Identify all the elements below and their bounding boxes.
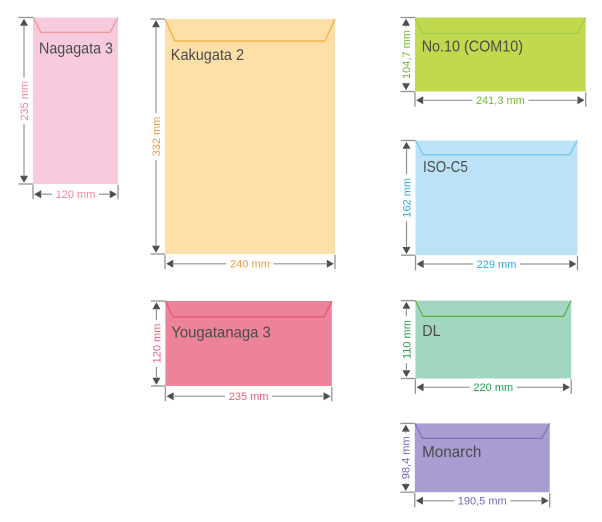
svg-text:190,5 mm: 190,5 mm — [458, 496, 507, 508]
svg-text:220 mm: 220 mm — [473, 382, 513, 394]
svg-text:235 mm: 235 mm — [19, 81, 31, 121]
svg-text:Kakugata 2: Kakugata 2 — [171, 47, 244, 64]
svg-text:110 mm: 110 mm — [401, 320, 413, 359]
svg-text:Monarch: Monarch — [422, 444, 481, 461]
svg-text:98,4 mm: 98,4 mm — [401, 436, 413, 479]
svg-text:104,7 mm: 104,7 mm — [401, 30, 413, 79]
svg-text:162 mm: 162 mm — [401, 178, 413, 218]
svg-text:241,3 mm: 241,3 mm — [476, 95, 525, 107]
svg-text:235 mm: 235 mm — [229, 391, 269, 403]
svg-text:ISO-C5: ISO-C5 — [423, 159, 468, 176]
svg-text:240 mm: 240 mm — [230, 259, 270, 271]
svg-text:229 mm: 229 mm — [477, 259, 517, 271]
svg-text:Nagagata 3: Nagagata 3 — [39, 40, 113, 57]
svg-text:120 mm: 120 mm — [151, 324, 163, 364]
svg-text:Yougatanaga 3: Yougatanaga 3 — [171, 325, 271, 342]
svg-text:120 mm: 120 mm — [56, 189, 96, 201]
svg-text:332 mm: 332 mm — [151, 117, 163, 157]
svg-text:No.10 (COM10): No.10 (COM10) — [422, 39, 523, 56]
svg-text:DL: DL — [422, 323, 440, 340]
